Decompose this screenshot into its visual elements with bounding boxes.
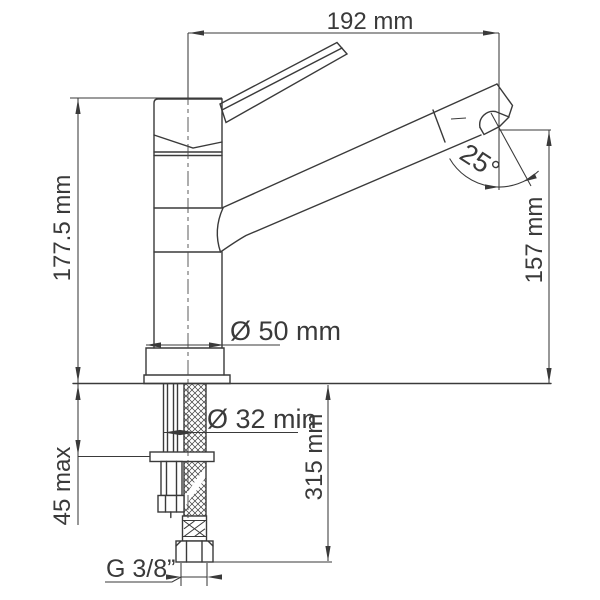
faucet-handle bbox=[220, 43, 347, 123]
mounting-stud-body bbox=[161, 462, 182, 496]
braided-hose bbox=[184, 384, 206, 516]
faucet-aerator bbox=[480, 84, 513, 135]
spout-body-fillet bbox=[217, 208, 223, 252]
hose-connector bbox=[183, 516, 207, 541]
dim-label-overall-height: 177.5 mm bbox=[49, 175, 76, 282]
dim-overall-height bbox=[70, 98, 222, 383]
mounting-washer bbox=[150, 452, 214, 462]
spout-collar-line bbox=[433, 110, 445, 142]
faucet-dimension-drawing: 192 mm 177.5 mm 25° 157 mm Ø 50 mm Ø 32 … bbox=[0, 0, 600, 600]
dim-spout-reach bbox=[188, 30, 499, 190]
dim-label-hose-length: 315 mm bbox=[301, 414, 328, 501]
faucet-spout bbox=[221, 84, 498, 252]
dim-label-base-diameter: Ø 50 mm bbox=[230, 316, 341, 346]
faucet-technical-drawing-page: 192 mm 177.5 mm 25° 157 mm Ø 50 mm Ø 32 … bbox=[0, 0, 600, 600]
dim-deck-thickness bbox=[75, 384, 150, 525]
dim-label-deck-thickness: 45 max bbox=[49, 447, 76, 526]
faucet-base bbox=[144, 348, 230, 384]
hose-end-nut bbox=[176, 541, 213, 562]
mounting-nut bbox=[158, 496, 184, 518]
dim-label-outlet-height: 157 mm bbox=[521, 197, 548, 284]
supply-hoses bbox=[164, 384, 178, 452]
faucet-body bbox=[154, 99, 223, 348]
dim-label-spout-angle: 25° bbox=[455, 138, 506, 185]
dim-label-supply-thread: G 3/8” bbox=[106, 555, 175, 583]
dim-label-spout-reach: 192 mm bbox=[327, 8, 414, 35]
